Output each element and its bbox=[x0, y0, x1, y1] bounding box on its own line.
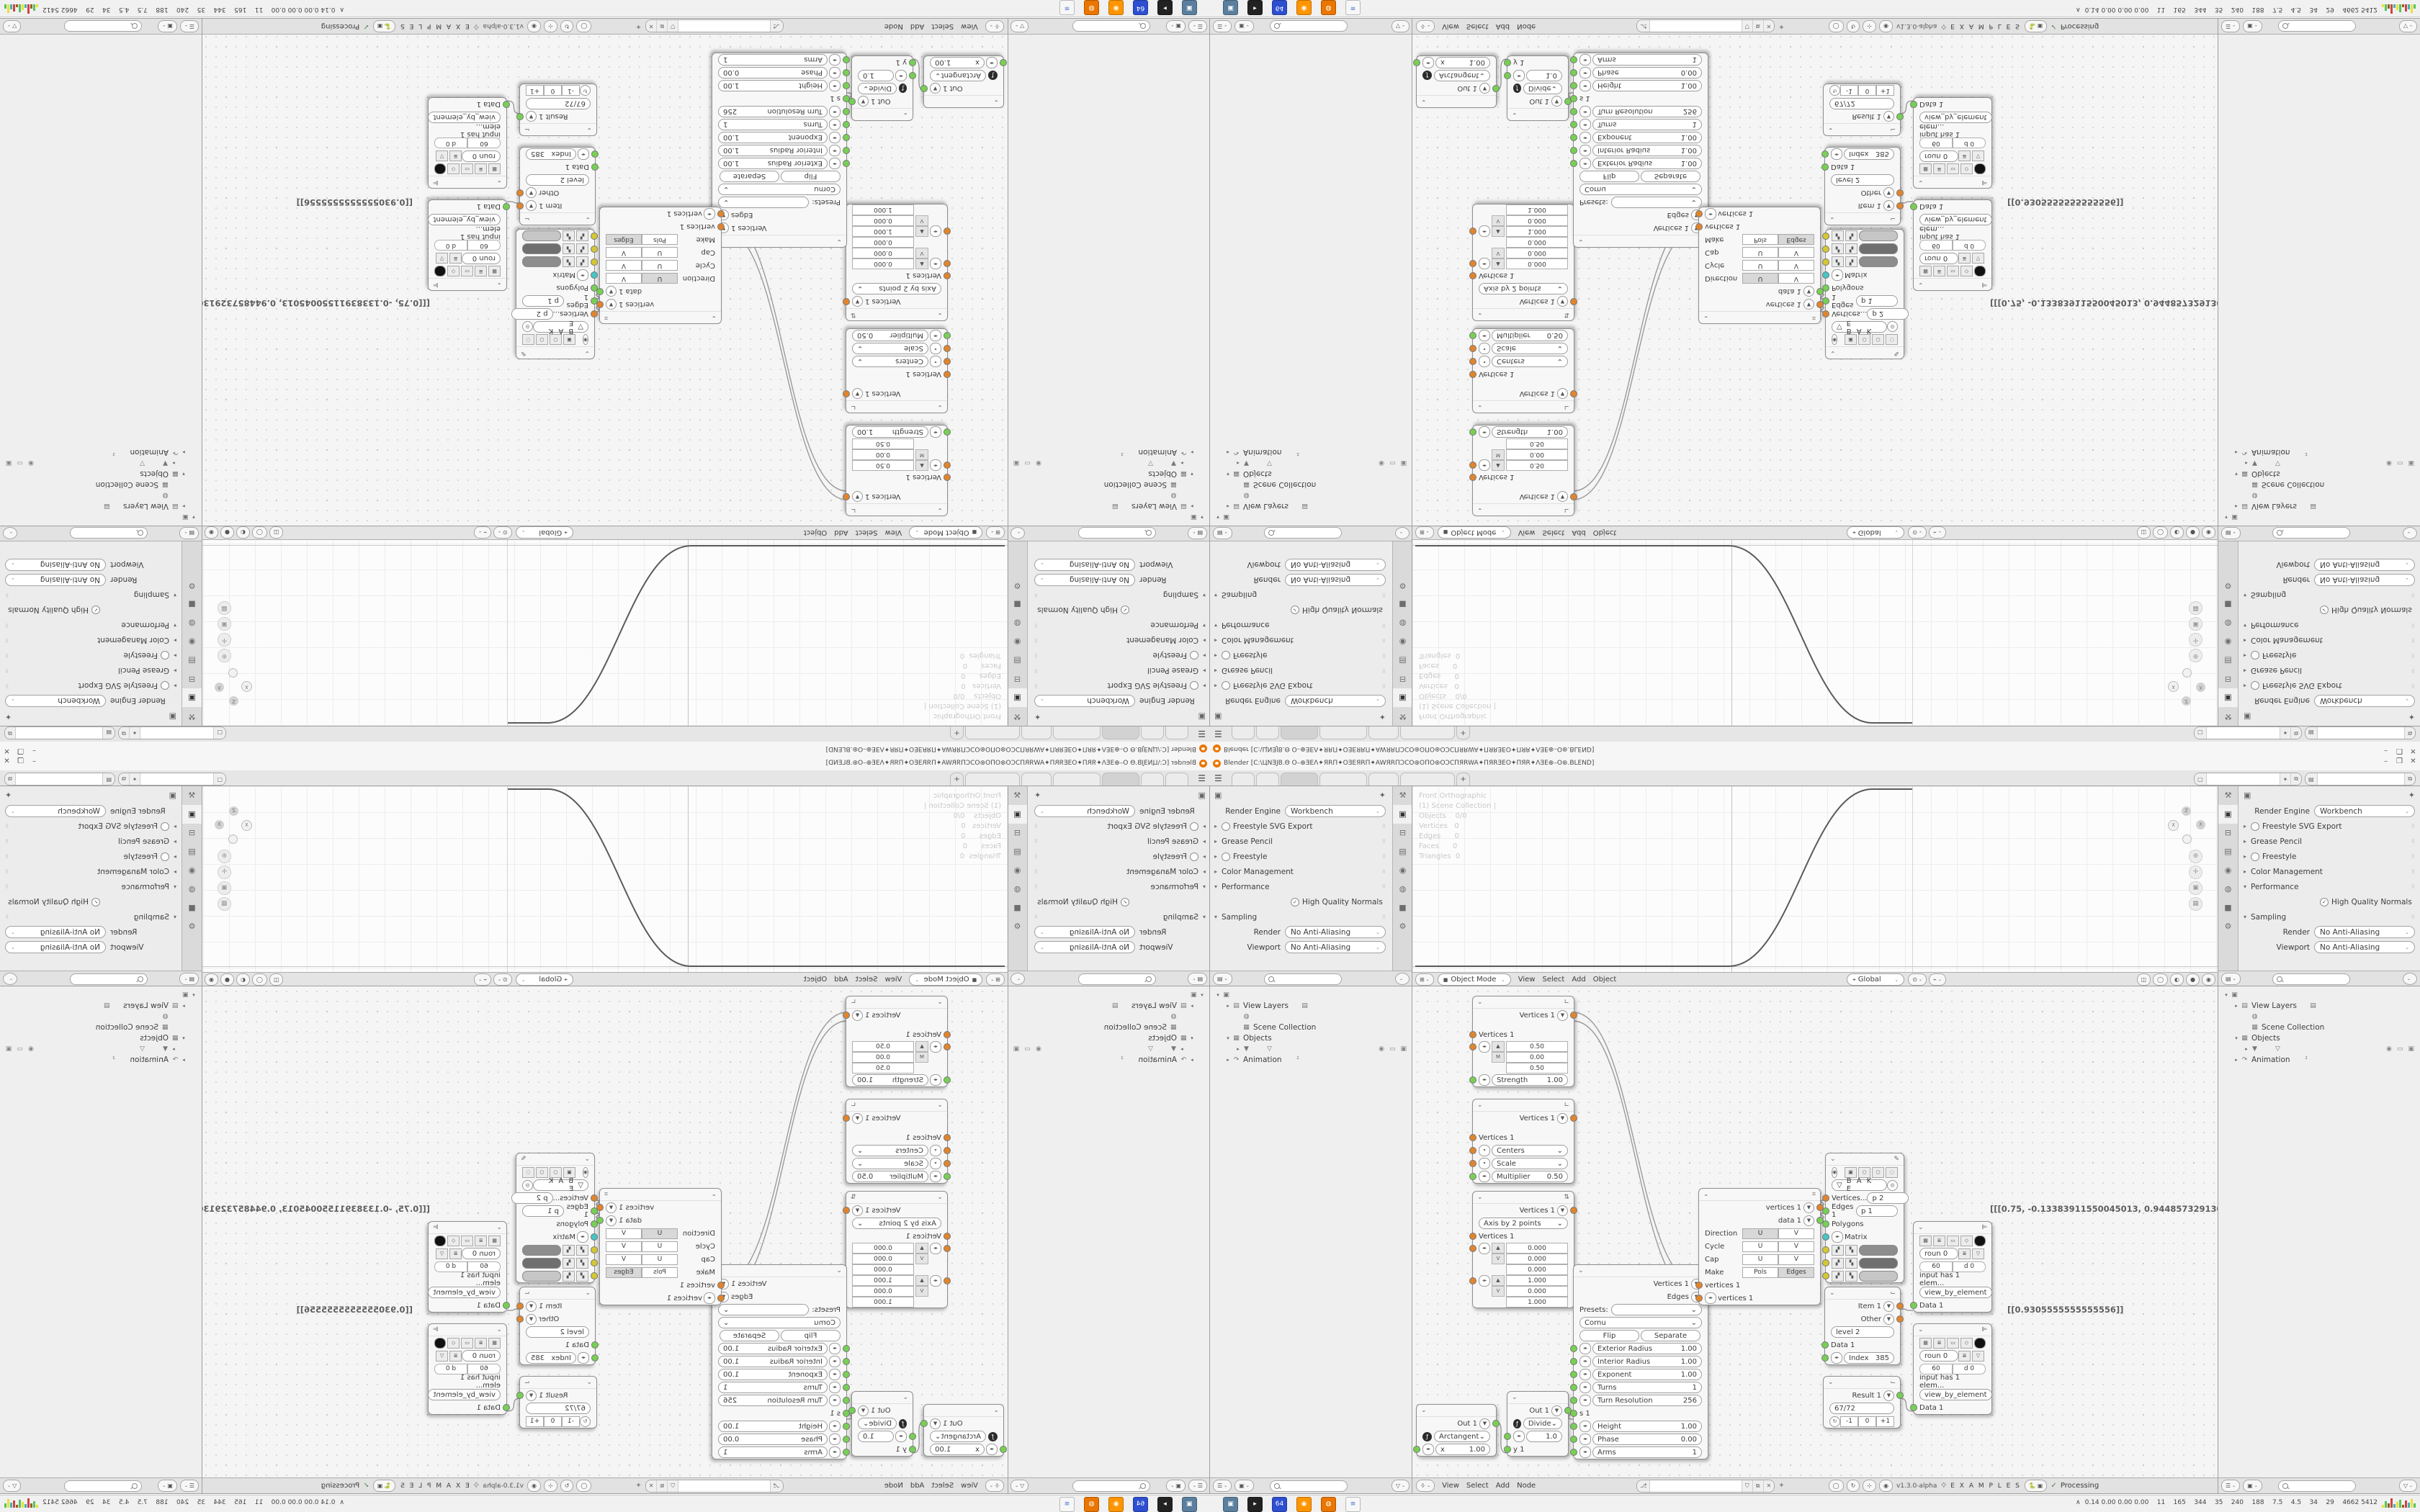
scene-selector[interactable]: ▢ ✦ ⧉ bbox=[2194, 726, 2302, 739]
split-right[interactable]: d 0 bbox=[1953, 1364, 1986, 1374]
value-pill[interactable]: view_by_element bbox=[428, 214, 501, 225]
vector-value[interactable]: 0.000 bbox=[852, 1254, 914, 1264]
scene-tab-icon[interactable]: ◉ bbox=[1393, 861, 1412, 880]
node-row-in[interactable]: vertices 1 bbox=[600, 1279, 721, 1292]
reprocess-icon[interactable]: ↻ bbox=[560, 1480, 574, 1492]
copy-scene-icon[interactable]: ⧉ bbox=[119, 727, 130, 739]
copy-tree-icon[interactable]: ⧉ bbox=[1752, 21, 1763, 32]
vector-value[interactable]: 0.000 bbox=[852, 215, 914, 226]
reprocess-icon[interactable]: ↻ bbox=[560, 20, 574, 32]
axis-x-ball[interactable]: X bbox=[215, 683, 224, 692]
value-pill[interactable]: level 2 bbox=[1831, 1326, 1894, 1338]
value-pill[interactable]: 67/72 bbox=[526, 98, 591, 109]
checkbox-circle[interactable]: ✓ bbox=[2320, 898, 2329, 906]
number-field[interactable]: 1.0 bbox=[858, 70, 894, 81]
expand-icon[interactable]: ▸ bbox=[180, 450, 187, 456]
collapse-chevron-icon[interactable]: ⌄ bbox=[993, 1407, 999, 1414]
socket-green[interactable] bbox=[591, 1341, 599, 1349]
field-viewport[interactable]: ViewportNo Anti-Aliasing⌄ bbox=[1210, 940, 1390, 955]
panel-sampling[interactable]: ▾Sampling⠿ bbox=[1030, 588, 1210, 603]
tool-tab-icon[interactable]: ⚒ bbox=[182, 707, 202, 726]
menu-object[interactable]: Object bbox=[800, 976, 831, 984]
node-header[interactable]: ⌄∟ bbox=[846, 503, 947, 516]
dropdown-circle-icon[interactable]: ▼ bbox=[1557, 389, 1568, 400]
socket-orange[interactable] bbox=[591, 310, 598, 318]
number-field[interactable]: Turns1 bbox=[718, 1382, 828, 1393]
socket-green[interactable] bbox=[1570, 108, 1577, 115]
panel-arrow-icon[interactable]: ▸ bbox=[2244, 683, 2251, 689]
math-operation-dropdown[interactable]: Divide⌄ bbox=[1523, 1418, 1562, 1429]
outliner-row-animation[interactable]: ▸↷Animation² bbox=[0, 447, 202, 458]
panel-arrow-icon[interactable]: ▾ bbox=[1214, 622, 1222, 629]
display-mode-icon-1[interactable]: ≣ bbox=[1933, 266, 1945, 277]
node-row-table[interactable]: DirectionUV bbox=[1699, 272, 1820, 285]
shade-icon[interactable]: ▚ bbox=[563, 231, 575, 242]
list-icon[interactable]: ≣ bbox=[1958, 253, 1971, 264]
split-right[interactable]: d 0 bbox=[434, 138, 467, 149]
panel-sampling[interactable]: ▾Sampling⠿ bbox=[1030, 909, 1210, 924]
disable-viewport-icon[interactable]: ▭ bbox=[1025, 460, 1031, 467]
node-row-out[interactable]: Out 1▼ bbox=[1507, 95, 1568, 108]
field-render-engine[interactable]: Render EngineWorkbench⌄ bbox=[1030, 693, 1210, 708]
node-spiral-cornu[interactable]: ⌄Vertices 1▼Edges▼Presets:⌄Cornu⌄FlipSep… bbox=[1573, 53, 1708, 248]
display-mode-icon-0[interactable]: ▦ bbox=[1919, 1338, 1932, 1349]
geom-icon[interactable]: ▞ bbox=[576, 257, 588, 268]
split-left[interactable]: 60 bbox=[467, 1261, 501, 1272]
outliner-row-objects[interactable]: ▾▦Objects bbox=[0, 1032, 202, 1043]
node-row-out[interactable]: Result 1▼ bbox=[1824, 1389, 1900, 1402]
menu-select[interactable]: Select bbox=[928, 22, 957, 30]
collapse-chevron-icon[interactable]: ⌄ bbox=[584, 1156, 590, 1163]
rounding-field[interactable]: roun 0 bbox=[462, 1248, 501, 1259]
node-row-iconrow[interactable]: ▦≣▭◇ bbox=[429, 1234, 506, 1247]
dropdown-field[interactable]: Scale⌄ bbox=[1492, 343, 1568, 354]
node-uv-connection[interactable]: ⌄⌗vertices 1▼data 1▼DirectionUVCycleUVCa… bbox=[599, 1188, 722, 1305]
dropdown-circle-icon[interactable]: ▼ bbox=[606, 1215, 617, 1226]
text-color-swatch[interactable] bbox=[434, 266, 446, 277]
field-value-dropdown[interactable]: No Anti-Aliasing⌄ bbox=[2314, 926, 2415, 938]
panel-freestyle[interactable]: ▸Freestyle⠿ bbox=[1, 648, 181, 663]
node-row-in[interactable]: Edges 1p 1 bbox=[1826, 294, 1904, 307]
panel-arrow-icon[interactable]: ▸ bbox=[1214, 667, 1222, 674]
dropdown-circle-icon[interactable]: ▼ bbox=[1883, 112, 1894, 122]
node-row-table[interactable]: DirectionUV bbox=[600, 272, 721, 285]
field-value-dropdown[interactable]: No Anti-Aliasing⌄ bbox=[1285, 926, 1386, 938]
collapse-chevron-icon[interactable]: ⌄ bbox=[1918, 1224, 1924, 1231]
outliner-display-mode-button[interactable]: ▣⌄ bbox=[1234, 20, 1254, 32]
socket-orange[interactable] bbox=[1469, 1160, 1476, 1167]
number-field[interactable]: Index385 bbox=[1844, 1352, 1894, 1364]
panel-arrow-icon[interactable]: ▸ bbox=[1198, 637, 1206, 644]
slider-toggle-icon[interactable]: ◂▸ bbox=[829, 1434, 841, 1445]
socket-orange[interactable] bbox=[717, 1295, 725, 1302]
node-row-iconrow[interactable]: ▦≣▭◇ bbox=[1914, 163, 1991, 176]
dropdown-circle-icon[interactable]: ▼ bbox=[1557, 1113, 1568, 1124]
socket-orange[interactable] bbox=[1896, 189, 1904, 197]
number-field[interactable]: x1.00 bbox=[1435, 57, 1490, 68]
shading-solid-icon[interactable]: ◐ bbox=[236, 973, 250, 986]
socket-green[interactable] bbox=[1492, 85, 1500, 92]
socket-green[interactable] bbox=[1821, 1341, 1829, 1349]
dropdown-circle-icon[interactable]: ▼ bbox=[526, 112, 537, 122]
node-row-out[interactable]: Other▼ bbox=[1825, 1313, 1900, 1326]
outliner-search-input[interactable] bbox=[64, 21, 142, 32]
hide-eye-icon[interactable]: ◉ bbox=[1036, 1045, 1041, 1053]
draft-mode-icon[interactable]: ◉ bbox=[527, 20, 541, 32]
node-row-iconrow[interactable]: ▦≣▭◇ bbox=[429, 1336, 506, 1349]
field-render[interactable]: RenderNo Anti-Aliasing⌄ bbox=[2239, 924, 2419, 940]
examples-menu[interactable]: E X A M P L E S bbox=[399, 23, 470, 30]
panel-freestyle[interactable]: ▸Freestyle⠿ bbox=[2239, 849, 2419, 864]
node-row-out[interactable]: data 1▼ bbox=[1699, 1214, 1820, 1227]
vector-row[interactable]: ◂▸▲0.000 bbox=[1473, 1243, 1574, 1254]
geom-icon[interactable]: ▞ bbox=[576, 1271, 588, 1282]
node-row-split[interactable]: 60d 0 bbox=[429, 137, 506, 150]
vector-value[interactable]: 0.000 bbox=[1506, 1264, 1568, 1275]
node-row-num[interactable]: ◂▸1.0 bbox=[1507, 69, 1568, 82]
node-editor-type-button[interactable]: ꕻ⌄ bbox=[985, 20, 1004, 32]
vector-row[interactable]: 0.50 bbox=[1473, 438, 1574, 449]
slider-toggle-icon[interactable]: ◂▸ bbox=[1579, 119, 1591, 130]
dropdown-circle-icon[interactable]: ▼ bbox=[526, 1314, 537, 1325]
disable-render-icon[interactable]: ▣ bbox=[2408, 460, 2414, 467]
draw-mode-icon-1[interactable]: ○ bbox=[1858, 335, 1870, 346]
socket-yellow[interactable] bbox=[1822, 1259, 1829, 1266]
collapse-chevron-icon[interactable]: ⌄ bbox=[937, 506, 943, 513]
field-viewport[interactable]: ViewportNo Anti-Aliasing⌄ bbox=[1030, 557, 1210, 572]
menu-view[interactable]: View bbox=[957, 22, 982, 30]
socket-green[interactable] bbox=[909, 72, 916, 79]
node-row-text[interactable]: input has 1 elem... bbox=[1914, 124, 1991, 137]
draft-mode-icon[interactable]: ◉ bbox=[1879, 20, 1893, 32]
outliner-row-objects[interactable]: ▾▦Objects bbox=[2218, 1032, 2420, 1043]
copy-scene-icon[interactable]: ⧉ bbox=[2290, 773, 2301, 785]
number-field[interactable]: Turn Resolution256 bbox=[718, 1395, 828, 1406]
toggle-u[interactable]: U bbox=[642, 274, 678, 284]
expand-icon[interactable]: ▸ bbox=[2243, 461, 2250, 467]
color-swatch[interactable] bbox=[522, 1258, 561, 1269]
math-operation-dropdown[interactable]: Divide⌄ bbox=[858, 1418, 897, 1429]
socket-green[interactable] bbox=[503, 203, 510, 210]
list-icon[interactable]: ≣ bbox=[449, 1248, 462, 1259]
geom-icon[interactable]: ▞ bbox=[576, 1245, 588, 1256]
node-uv-connection[interactable]: ⌄⌗vertices 1▼data 1▼DirectionUVCycleUVCa… bbox=[1698, 1188, 1821, 1305]
disable-render-icon[interactable]: ▣ bbox=[6, 1045, 12, 1053]
step--1[interactable]: -1 bbox=[1840, 86, 1858, 96]
draw-mode-icon-2[interactable]: ○ bbox=[536, 335, 548, 346]
rounding-field[interactable]: roun 0 bbox=[1919, 1248, 1958, 1259]
wrap-toggle-icon[interactable]: ◂▸ bbox=[1832, 269, 1843, 281]
node-row-dd[interactable]: Axis by 2 points⌄ bbox=[1473, 282, 1574, 295]
render-tab-icon[interactable]: ▣ bbox=[1008, 805, 1027, 824]
panel-arrow-icon[interactable]: ▸ bbox=[1198, 868, 1206, 875]
vector-row[interactable]: V0.000 bbox=[1473, 248, 1574, 258]
bake-button[interactable]: ▽B A K E bbox=[533, 321, 588, 333]
dropdown-circle-icon[interactable]: ▼ bbox=[526, 188, 537, 199]
zoom-tool-icon[interactable]: ⊕ bbox=[2189, 649, 2202, 662]
field-value-dropdown[interactable]: No Anti-Aliasing⌄ bbox=[5, 574, 106, 586]
color-swatch[interactable] bbox=[1859, 1258, 1898, 1269]
node-row-mathdd[interactable]: ƒArctangent⌄ bbox=[924, 1430, 1003, 1443]
scene-icon[interactable]: ▢ bbox=[213, 727, 225, 739]
socket-green[interactable] bbox=[1469, 428, 1476, 436]
world-tab-icon[interactable]: ◍ bbox=[1008, 880, 1027, 899]
node-row-pill[interactable]: view_by_element bbox=[1914, 213, 1991, 226]
node-row-out[interactable]: Out 1▼ bbox=[852, 95, 913, 108]
node-row-num[interactable]: ◂▸x1.00 bbox=[1417, 1443, 1496, 1456]
vector-row[interactable]: M0.00 bbox=[1473, 1052, 1574, 1063]
node-row-pill[interactable]: view_by_element bbox=[429, 213, 506, 226]
dropdown-field[interactable]: Scale⌄ bbox=[852, 1158, 928, 1169]
notepad-icon[interactable]: ≡ bbox=[1059, 0, 1075, 15]
node-row-dd[interactable]: ▾Centers⌄ bbox=[1473, 355, 1574, 368]
workspace-tab-5[interactable] bbox=[1021, 773, 1052, 787]
node-row-num[interactable]: ◂▸Strength1.00 bbox=[1473, 1074, 1574, 1086]
node-stethoscope-1[interactable]: ⌄⊫▦≣▭◇roun 0≣▽60d 0input has 1 elem...vi… bbox=[1913, 199, 1992, 291]
pin-icon[interactable]: ✦ bbox=[5, 713, 12, 722]
collapse-chevron-icon[interactable]: ⌄ bbox=[993, 98, 999, 105]
socket-green[interactable] bbox=[1822, 1220, 1829, 1228]
pin-scene-icon[interactable]: ✦ bbox=[2280, 727, 2291, 739]
python-console-button[interactable]: 🐍▣ bbox=[2025, 1480, 2048, 1492]
socket-green[interactable] bbox=[909, 1433, 916, 1440]
menu-node[interactable]: Node bbox=[881, 22, 907, 30]
count-pill[interactable]: p 2 bbox=[511, 1192, 553, 1204]
wrap-toggle-icon[interactable]: ◂▸ bbox=[704, 1292, 715, 1304]
socket-yellow[interactable] bbox=[591, 233, 598, 240]
panel-sampling[interactable]: ▾Sampling⠿ bbox=[1210, 909, 1390, 924]
socket-green[interactable] bbox=[1570, 95, 1577, 102]
bake-ring-icon[interactable]: ◎ bbox=[522, 1180, 533, 1191]
shading-solid-icon[interactable]: ◐ bbox=[2170, 973, 2184, 986]
navigation-gizmo[interactable]: Z X X bbox=[2168, 806, 2205, 844]
collapse-chevron-icon[interactable]: ⌄ bbox=[585, 215, 591, 222]
panel-arrow-icon[interactable]: ▸ bbox=[2244, 652, 2251, 659]
live-update-icon[interactable]: ◯ bbox=[576, 1480, 591, 1492]
field-value-dropdown[interactable]: Workbench⌄ bbox=[1034, 695, 1135, 707]
node-viewer-draw-bake[interactable]: ⌄✎◉▣○○◌▽B A K E◎Vertices...p 2Edges 1p 1… bbox=[1825, 229, 1904, 359]
properties-search-input[interactable] bbox=[1078, 528, 1156, 539]
shade-icon[interactable]: ▚ bbox=[1845, 257, 1857, 268]
modifier-tab-icon[interactable]: ⚙ bbox=[182, 917, 202, 936]
node-row-labeldd[interactable]: Presets:⌄ bbox=[712, 196, 846, 209]
presets-dropdown[interactable]: ⌄ bbox=[718, 197, 809, 208]
gizmo-toggle-icon[interactable]: ⊹ bbox=[544, 20, 557, 32]
socket-orange[interactable] bbox=[1469, 261, 1476, 268]
vector-row[interactable]: ◂▸▲0.50 bbox=[846, 1041, 947, 1052]
wrap-toggle-icon[interactable]: ◂▸ bbox=[577, 269, 588, 281]
vector-row[interactable]: 0.50 bbox=[846, 438, 947, 449]
pin-scene-icon[interactable]: ✦ bbox=[130, 773, 141, 785]
toggle-v[interactable]: V bbox=[1778, 1228, 1814, 1239]
collapse-chevron-icon[interactable]: ⌄ bbox=[902, 1394, 908, 1401]
expand-icon[interactable]: ▸ bbox=[170, 461, 177, 467]
collapse-chevron-icon[interactable]: ⌄ bbox=[1512, 1394, 1518, 1401]
node-header[interactable]: ⌄⌙ bbox=[520, 1377, 596, 1389]
vector-value[interactable]: 1.000 bbox=[1506, 1275, 1568, 1286]
toggle-v[interactable]: V bbox=[606, 1254, 642, 1265]
toggle-u[interactable]: U bbox=[642, 261, 678, 271]
outliner-row-objects[interactable]: ▾▦Objects bbox=[2218, 469, 2420, 480]
field-value-dropdown[interactable]: No Anti-Aliasing⌄ bbox=[5, 559, 106, 571]
vector-value[interactable]: 0.000 bbox=[1506, 1254, 1568, 1264]
socket-orange[interactable] bbox=[591, 1194, 598, 1202]
display-mode-icon-0[interactable]: ▦ bbox=[1919, 164, 1932, 175]
node-tree-icon[interactable]: ⎇ bbox=[1637, 21, 1650, 32]
slider-toggle-icon[interactable]: ◂▸ bbox=[895, 70, 907, 81]
socket-green[interactable] bbox=[1469, 1076, 1476, 1084]
disable-viewport-icon[interactable]: ▭ bbox=[2397, 1045, 2403, 1053]
node-row-pill[interactable]: view_by_element bbox=[1914, 1286, 1991, 1299]
display-mode-icon-1[interactable]: ≣ bbox=[475, 266, 487, 277]
tool-tab-icon[interactable]: ⚒ bbox=[182, 786, 202, 805]
node-row-dd[interactable]: ▾Scale⌄ bbox=[846, 342, 947, 355]
disable-render-icon[interactable]: ▣ bbox=[1013, 1045, 1020, 1053]
number-field[interactable]: Arms1 bbox=[1592, 1446, 1702, 1458]
disable-render-icon[interactable]: ▣ bbox=[1400, 460, 1407, 467]
split-left[interactable]: 60 bbox=[467, 1364, 501, 1374]
number-field[interactable]: Turn Resolution256 bbox=[1592, 106, 1702, 117]
node-row-roun[interactable]: roun 0≣▽ bbox=[429, 150, 506, 163]
wrap-toggle-icon[interactable]: ◂▸ bbox=[577, 1231, 588, 1243]
draw-mode-icon-3[interactable]: ◌ bbox=[1886, 1167, 1898, 1178]
panel-performance[interactable]: ▾Performance⠿ bbox=[2239, 879, 2419, 894]
node-header[interactable]: ⌄ bbox=[924, 1405, 1003, 1417]
geom-icon[interactable]: ▞ bbox=[1832, 1258, 1844, 1269]
vector-row[interactable]: 0.000 bbox=[1473, 1264, 1574, 1275]
field-value-dropdown[interactable]: No Anti-Aliasing⌄ bbox=[2314, 574, 2415, 586]
rounding-field[interactable]: roun 0 bbox=[1919, 150, 1958, 162]
outliner-row[interactable]: ▸▼▽◉▭▣ bbox=[1008, 458, 1210, 469]
draw-mode-icon-3[interactable]: ◌ bbox=[1886, 335, 1898, 346]
bake-button[interactable]: ▽B A K E bbox=[1832, 1179, 1887, 1191]
wrap-toggle-icon[interactable]: ▾ bbox=[1479, 356, 1490, 367]
app-menu-icon[interactable]: ☰ bbox=[1198, 729, 1206, 739]
axis-z-ball[interactable]: Z bbox=[2182, 806, 2191, 816]
node-row-out[interactable]: Item 1▼ bbox=[520, 1300, 595, 1313]
node-row-num[interactable]: ◂▸x1.00 bbox=[924, 56, 1003, 69]
node-row-in[interactable]: Data 1 bbox=[1914, 98, 1991, 111]
socket-orange[interactable] bbox=[1822, 1194, 1829, 1202]
dropdown-field[interactable]: Cornu⌄ bbox=[1579, 184, 1702, 195]
node-row-out[interactable]: Vertices 1▼ bbox=[846, 295, 947, 308]
node-list-item[interactable]: ⌄⌙Item 1▼Other▼level 2Data 1◂▸Index385 bbox=[519, 1287, 596, 1365]
number-field[interactable]: Arms1 bbox=[718, 1446, 828, 1458]
disable-viewport-icon[interactable]: ▭ bbox=[1025, 1045, 1031, 1053]
node-list-item[interactable]: ⌄⌙Item 1▼Other▼level 2Data 1◂▸Index385 bbox=[1824, 1287, 1901, 1365]
node-row-mathdd[interactable]: ƒDivide⌄ bbox=[852, 82, 913, 95]
field-render[interactable]: RenderNo Anti-Aliasing⌄ bbox=[1030, 572, 1210, 588]
node-row-table[interactable]: MakePolsEdges bbox=[1699, 1266, 1820, 1279]
node-row-mathdd[interactable]: ƒDivide⌄ bbox=[1507, 82, 1568, 95]
flip-toggle[interactable]: Flip bbox=[1579, 171, 1639, 182]
socket-green[interactable] bbox=[1570, 1358, 1577, 1365]
node-row-dd[interactable]: ▾Centers⌄ bbox=[1473, 1144, 1574, 1157]
expand-icon[interactable]: ▾ bbox=[190, 515, 197, 521]
vector-row[interactable]: ◂▸▲0.000 bbox=[846, 1243, 947, 1254]
node-header[interactable]: ⌄⊫ bbox=[429, 1324, 506, 1336]
expand-icon[interactable]: ▾ bbox=[1224, 472, 1232, 477]
text-color-swatch[interactable] bbox=[434, 1338, 446, 1349]
render-tab-icon[interactable]: ▣ bbox=[2218, 688, 2238, 707]
number-field[interactable]: 1.0 bbox=[1526, 1431, 1562, 1442]
dropdown-circle-icon[interactable]: ▼ bbox=[1803, 300, 1814, 310]
outliner-display-mode-button[interactable]: ▣⌄ bbox=[158, 1480, 177, 1492]
node-row-color[interactable]: ▞▚ bbox=[516, 1269, 594, 1282]
rounding-field[interactable]: roun 0 bbox=[462, 253, 501, 264]
number-field[interactable]: Turn Resolution256 bbox=[718, 106, 828, 117]
blender-icon[interactable]: ◍ bbox=[1321, 0, 1336, 15]
color-swatch[interactable] bbox=[522, 257, 561, 268]
viewport-3d[interactable]: Front Orthographic(1) Scene Collection |… bbox=[1412, 786, 2218, 986]
blender-icon[interactable]: ◍ bbox=[1321, 1497, 1336, 1512]
separate-toggle[interactable]: Separate bbox=[720, 171, 779, 182]
app-menu-icon[interactable]: ☰ bbox=[1214, 729, 1222, 739]
expand-icon[interactable]: ▾ bbox=[1188, 472, 1196, 477]
math-operation-dropdown[interactable]: Arctangent⌄ bbox=[1434, 70, 1490, 81]
socket-green[interactable] bbox=[1821, 163, 1829, 171]
navigation-gizmo[interactable]: Z X X bbox=[2168, 668, 2205, 706]
node-header[interactable]: ⌄⇅ bbox=[846, 1192, 947, 1204]
node-row-num[interactable]: ◂▸Phase0.00 bbox=[1574, 1433, 1708, 1446]
tray-expander-icon[interactable]: ∧ bbox=[339, 6, 344, 13]
menu-node[interactable]: Node bbox=[1513, 22, 1539, 30]
outliner-row[interactable]: ◍ bbox=[0, 1011, 202, 1022]
field-render[interactable]: RenderNo Anti-Aliasing⌄ bbox=[1, 924, 181, 940]
node-row-out[interactable]: Other▼ bbox=[1825, 186, 1900, 199]
socket-orange[interactable] bbox=[944, 1043, 951, 1050]
slider-toggle-icon[interactable]: ◂▸ bbox=[829, 1446, 841, 1458]
socket-green[interactable] bbox=[1413, 1446, 1420, 1453]
object-tab-icon[interactable]: ■ bbox=[182, 595, 202, 613]
display-mode-icon-2[interactable]: ▭ bbox=[461, 1236, 473, 1246]
color-swatch[interactable] bbox=[1859, 244, 1898, 255]
node-stethoscope-1[interactable]: ⌄⊫▦≣▭◇roun 0≣▽60d 0input has 1 elem...vi… bbox=[428, 199, 507, 291]
panel-checkbox[interactable] bbox=[1190, 822, 1198, 831]
step--1[interactable]: -1 bbox=[562, 86, 580, 96]
world-tab-icon[interactable]: ◍ bbox=[2218, 880, 2238, 899]
field-render-engine[interactable]: Render EngineWorkbench⌄ bbox=[2239, 804, 2419, 819]
node-row-roun[interactable]: roun 0≣▽ bbox=[1914, 252, 1991, 265]
toggle-xray-icon[interactable]: ◫ bbox=[2137, 973, 2151, 986]
wrap-toggle-icon[interactable]: ◂▸ bbox=[1705, 1292, 1716, 1304]
node-row-pill[interactable]: view_by_element bbox=[429, 1286, 506, 1299]
collapse-chevron-icon[interactable]: ⌄ bbox=[1578, 238, 1584, 245]
dropdown-circle-icon[interactable]: ▼ bbox=[606, 1202, 617, 1213]
menu-select[interactable]: Select bbox=[928, 1482, 957, 1490]
socket-orange[interactable] bbox=[1570, 1012, 1577, 1019]
socket-green[interactable] bbox=[944, 1076, 951, 1084]
node-row-num[interactable]: ◂▸Strength1.00 bbox=[846, 1074, 947, 1086]
dropdown-circle-icon[interactable]: ▼ bbox=[852, 1113, 863, 1124]
node-row-in[interactable]: Data 1 bbox=[520, 161, 595, 174]
slider-toggle-icon[interactable]: ◂▸ bbox=[1479, 1171, 1490, 1182]
dropdown-circle-icon[interactable]: ▼ bbox=[1803, 1215, 1814, 1226]
color-swatch[interactable] bbox=[522, 244, 561, 255]
node-row-roun[interactable]: roun 0≣▽ bbox=[1914, 150, 1991, 163]
dropdown-circle-icon[interactable]: ▼ bbox=[606, 287, 617, 297]
geom-icon[interactable]: ▞ bbox=[576, 1258, 588, 1269]
node-row-bake[interactable]: ▽B A K E◎ bbox=[516, 1179, 594, 1192]
field-render[interactable]: RenderNo Anti-Aliasing⌄ bbox=[1210, 572, 1390, 588]
node-row-in[interactable]: Vertices 1 bbox=[846, 1028, 947, 1041]
node-row-text[interactable]: input has 1 elem... bbox=[1914, 1375, 1991, 1388]
filter-icon[interactable]: ▽ bbox=[1972, 1351, 1984, 1362]
world-tab-icon[interactable]: ◍ bbox=[1008, 613, 1027, 632]
slider-toggle-icon[interactable]: ◂▸ bbox=[1479, 1041, 1490, 1053]
shading-rendered-icon[interactable]: ◉ bbox=[205, 526, 218, 539]
vector-row[interactable]: 0.50 bbox=[846, 1063, 947, 1074]
